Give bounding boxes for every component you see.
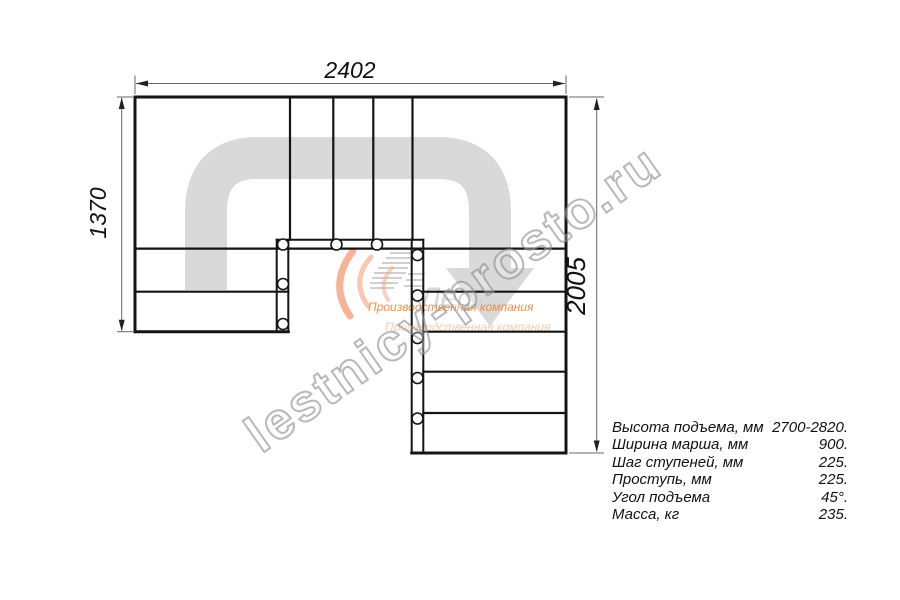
dimension-left: 1370	[85, 97, 133, 332]
dim-arrow-icon	[119, 98, 125, 110]
specs-table: Высота подъема, мм 2700-2820. Ширина мар…	[612, 419, 848, 523]
spec-row-tread: Проступь, мм 225.	[612, 471, 848, 488]
spec-label: Масса, кг	[612, 506, 770, 523]
dim-arrow-icon	[553, 81, 565, 87]
spec-row-lift-height: Высота подъема, мм 2700-2820.	[612, 419, 848, 436]
stair-drawing-page: Лес Производственная компания Производст…	[0, 0, 900, 600]
dim-arrow-icon	[594, 98, 600, 110]
dim-left-label: 1370	[85, 187, 111, 238]
spec-value: 2700-2820.	[770, 419, 848, 436]
spec-label: Ширина марша, мм	[612, 436, 770, 453]
dim-arrow-icon	[594, 441, 600, 453]
baluster-post	[372, 239, 383, 250]
dim-arrow-icon	[136, 81, 148, 87]
baluster-post	[278, 279, 289, 290]
dim-arrow-icon	[119, 320, 125, 332]
baluster-post	[278, 239, 289, 250]
spec-row-mass: Масса, кг 235.	[612, 506, 848, 523]
watermark-text: lestnicy-prosto.ru	[235, 134, 672, 464]
spec-label: Высота подъема, мм	[612, 419, 770, 436]
spec-row-flight-width: Ширина марша, мм 900.	[612, 436, 848, 453]
spec-value: 900.	[770, 436, 848, 453]
spec-label: Шаг ступеней, мм	[612, 454, 770, 471]
spec-value: 45°.	[770, 489, 848, 506]
spec-value: 235.	[770, 506, 848, 523]
baluster-post	[331, 239, 342, 250]
spec-value: 225.	[770, 471, 848, 488]
dim-top-label: 2402	[323, 57, 375, 83]
spec-row-angle: Угол подъема 45°.	[612, 489, 848, 506]
spec-label: Проступь, мм	[612, 471, 770, 488]
baluster-post	[412, 413, 423, 424]
dim-right-label: 2005	[561, 257, 591, 316]
spec-value: 225.	[770, 454, 848, 471]
baluster-post	[278, 319, 289, 330]
spec-label: Угол подъема	[612, 489, 770, 506]
baluster-post	[412, 373, 423, 384]
dimension-top: 2402	[135, 57, 566, 94]
baluster-post	[412, 250, 423, 261]
spec-row-step-pitch: Шаг ступеней, мм 225.	[612, 454, 848, 471]
